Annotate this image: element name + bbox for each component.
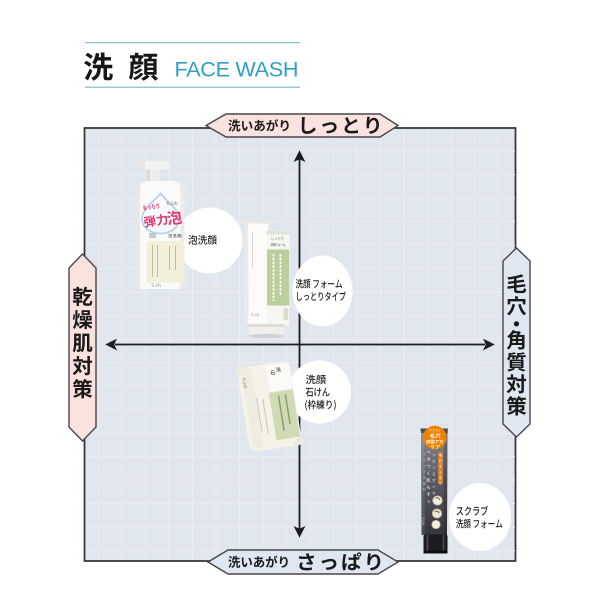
svg-text:FACE WASH: FACE WASH	[175, 57, 299, 82]
